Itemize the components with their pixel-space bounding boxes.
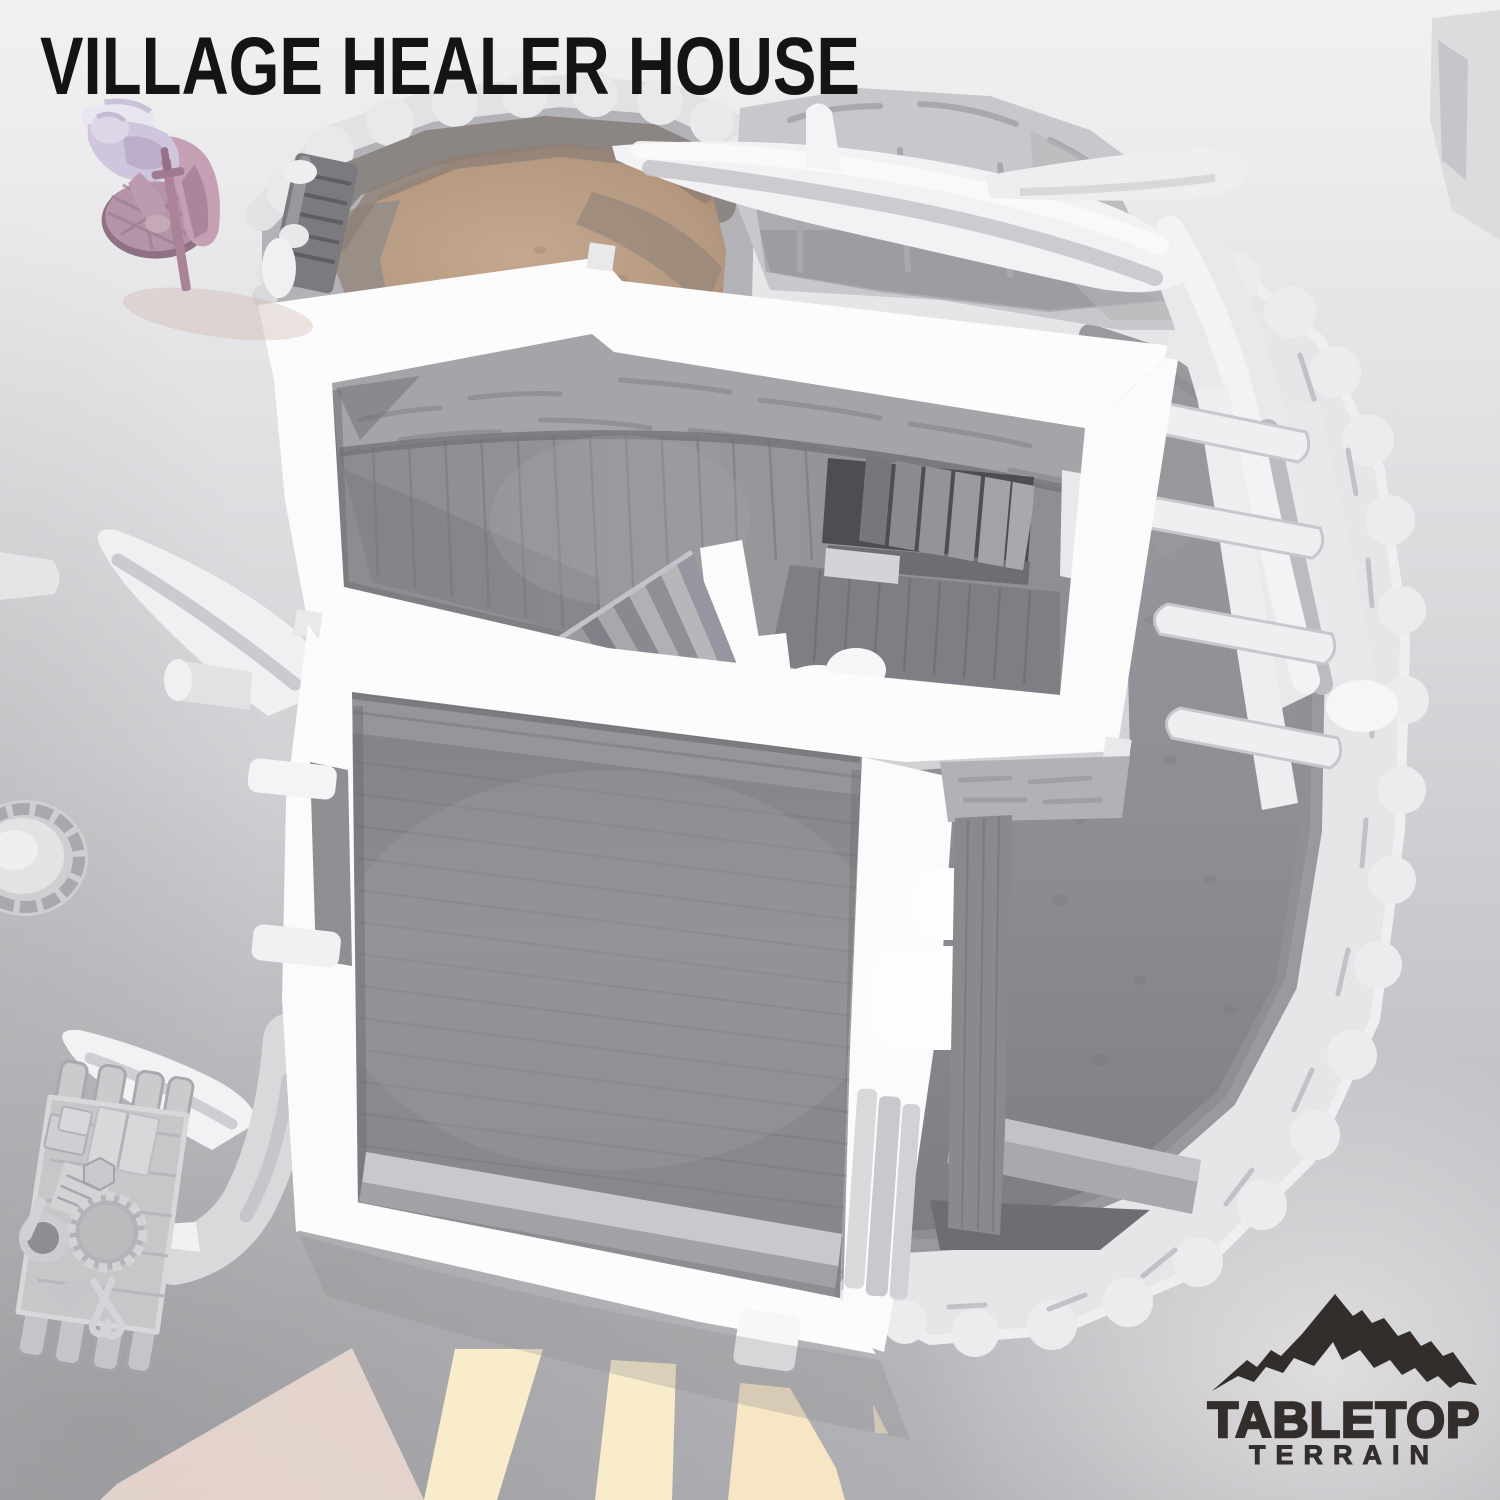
svg-text:TERRAIN: TERRAIN [1249, 1440, 1439, 1470]
svg-text:VILLAGE HEALER HOUSE: VILLAGE HEALER HOUSE [40, 21, 860, 112]
